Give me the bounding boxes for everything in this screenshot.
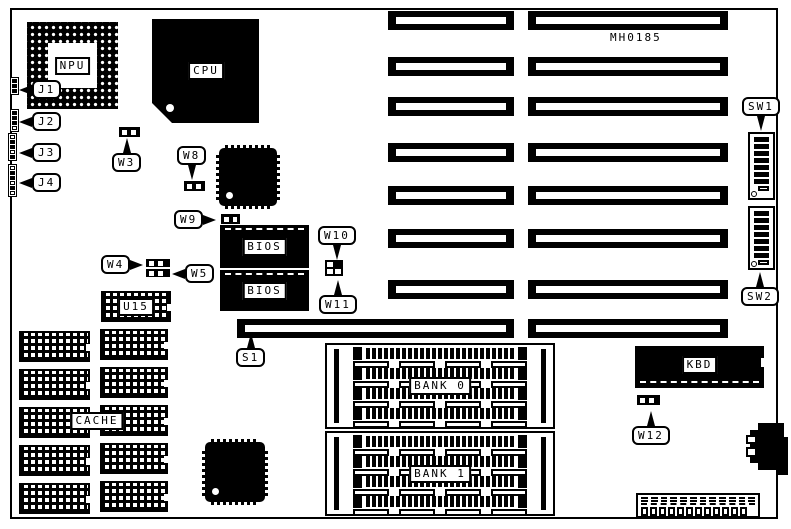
w8-label: W8 (177, 146, 206, 165)
expansion-slot (388, 57, 514, 76)
simm-socket (353, 408, 527, 428)
memory-bank-0: BANK 0 (325, 343, 555, 429)
expansion-slot (388, 229, 514, 248)
w3-label: W3 (112, 153, 141, 172)
callout-w4: W4 (101, 255, 130, 274)
power-pad (690, 497, 697, 502)
power-pad (739, 497, 746, 502)
power-pad (709, 497, 716, 502)
power-pad (651, 497, 658, 502)
pointer-up-icon (123, 138, 131, 153)
pointer-right-icon (130, 260, 143, 270)
power-pad (748, 497, 755, 502)
expansion-slot (388, 186, 514, 205)
expansion-slot (388, 280, 514, 299)
power-pin (740, 507, 747, 516)
power-pad (680, 497, 687, 502)
cache-chip (19, 369, 90, 400)
connector-j2 (10, 109, 19, 132)
connector-j1 (10, 77, 19, 95)
part-number: MH0185 (610, 31, 662, 44)
cache-chip (100, 481, 168, 512)
j3-label: J3 (32, 143, 61, 162)
jumper-w12 (637, 395, 660, 405)
cache-label: CACHE (70, 412, 123, 430)
callout-sw2: SW2 (741, 287, 779, 306)
bank1-label: BANK 1 (409, 465, 471, 483)
power-pin (668, 507, 675, 516)
bank0-label: BANK 0 (409, 377, 471, 395)
callout-sw1: SW1 (742, 97, 780, 116)
cache-chip (100, 443, 168, 474)
power-pad (670, 497, 677, 502)
pointer-left-icon (19, 117, 32, 127)
connector-j3 (8, 133, 17, 161)
npu-label: NPU (55, 57, 91, 75)
motherboard-diagram: NPU CPU J1 J2 J3 J4 W3 W8 W9 (0, 0, 791, 529)
callout-w12: W12 (632, 426, 670, 445)
power-pin (641, 507, 648, 516)
power-pin (695, 507, 702, 516)
callout-w9: W9 (174, 210, 203, 229)
j4-label: J4 (32, 173, 61, 192)
power-pin (713, 507, 720, 516)
s1-label: S1 (236, 348, 265, 367)
jumper-w10-w11 (325, 260, 343, 276)
power-pad (641, 497, 648, 502)
expansion-slot (388, 143, 514, 162)
divider (641, 503, 755, 505)
j1-label: J1 (32, 80, 61, 99)
expansion-slot (528, 57, 728, 76)
cache-chip (100, 367, 168, 398)
simm-socket (353, 436, 527, 456)
kbd-label: KBD (682, 356, 718, 374)
qfp-chip-top (216, 145, 280, 209)
expansion-slot (528, 143, 728, 162)
qfp-chip-bottom (202, 439, 268, 505)
expansion-slot (528, 97, 728, 116)
dip-switch-sw1 (748, 132, 775, 200)
cpu-pin1-dot (166, 104, 174, 112)
qfp-pin1-dot (212, 488, 219, 495)
cpu-label: CPU (188, 62, 224, 80)
pointer-right-icon (203, 215, 216, 225)
kbd-chip: KBD (635, 346, 764, 388)
pointer-down-icon (188, 165, 196, 180)
power-pin (677, 507, 684, 516)
sw1-label: SW1 (742, 97, 780, 116)
bios-top-label: BIOS (242, 238, 287, 256)
power-pin (659, 507, 666, 516)
callout-w10: W10 (318, 226, 356, 245)
cache-chip (100, 329, 168, 360)
pointer-left-icon (19, 85, 32, 95)
callout-j3: J3 (32, 143, 61, 162)
pointer-up-icon (756, 272, 764, 287)
pointer-left-icon (19, 148, 32, 158)
expansion-slot (388, 11, 514, 30)
power-connector (636, 493, 760, 518)
u15-label: U15 (118, 298, 154, 316)
jumper-w9 (221, 214, 240, 224)
power-pin (704, 507, 711, 516)
dip-switch-sw2 (748, 206, 775, 270)
expansion-slot (528, 11, 728, 30)
power-pin (686, 507, 693, 516)
sw2-label: SW2 (741, 287, 779, 306)
pointer-left-icon (19, 178, 32, 188)
power-pad (729, 497, 736, 502)
j2-label: J2 (32, 112, 61, 131)
bios-bottom-label: BIOS (242, 282, 287, 300)
callout-j1: J1 (32, 80, 61, 99)
pointer-down-icon (757, 116, 765, 131)
w12-label: W12 (632, 426, 670, 445)
callout-j4: J4 (32, 173, 61, 192)
memory-bank-1: BANK 1 (325, 431, 555, 516)
simm-socket (353, 496, 527, 516)
keyboard-connector-pin (746, 447, 757, 457)
callout-w8: W8 (177, 146, 206, 165)
bios-chip-bottom: BIOS (220, 270, 309, 311)
expansion-slot (528, 229, 728, 248)
bios-chip-top: BIOS (220, 225, 309, 268)
connector-j4 (8, 164, 17, 197)
expansion-slot (528, 319, 728, 338)
power-pin (731, 507, 738, 516)
jumper-w4-w5 (146, 259, 170, 277)
callout-w11: W11 (319, 295, 357, 314)
expansion-slot-s1 (237, 319, 514, 338)
expansion-slot (528, 186, 728, 205)
power-pad (719, 497, 726, 502)
cache-chip (19, 445, 90, 476)
w9-label: W9 (174, 210, 203, 229)
qfp-pin1-dot (226, 192, 233, 199)
expansion-slot (388, 97, 514, 116)
jumper-w8 (184, 181, 205, 191)
w5-label: W5 (185, 264, 214, 283)
power-pin (722, 507, 729, 516)
u15-chip: U15 (101, 291, 171, 322)
callout-j2: J2 (32, 112, 61, 131)
callout-s1: S1 (236, 348, 265, 367)
cache-chip (19, 331, 90, 362)
cache-chip (19, 483, 90, 514)
pointer-down-icon (333, 245, 341, 260)
keyboard-connector (778, 437, 788, 475)
power-pad (700, 497, 707, 502)
jumper-w3 (119, 127, 140, 137)
pointer-up-icon (334, 280, 342, 295)
pointer-left-icon (172, 269, 185, 279)
w11-label: W11 (319, 295, 357, 314)
power-pad (661, 497, 668, 502)
callout-w5: W5 (185, 264, 214, 283)
power-pin (650, 507, 657, 516)
pointer-up-icon (647, 411, 655, 426)
w10-label: W10 (318, 226, 356, 245)
w4-label: W4 (101, 255, 130, 274)
callout-w3: W3 (112, 153, 141, 172)
keyboard-connector-pin (746, 435, 757, 444)
simm-socket (353, 348, 527, 368)
pointer-up-icon (247, 333, 255, 348)
expansion-slot (528, 280, 728, 299)
